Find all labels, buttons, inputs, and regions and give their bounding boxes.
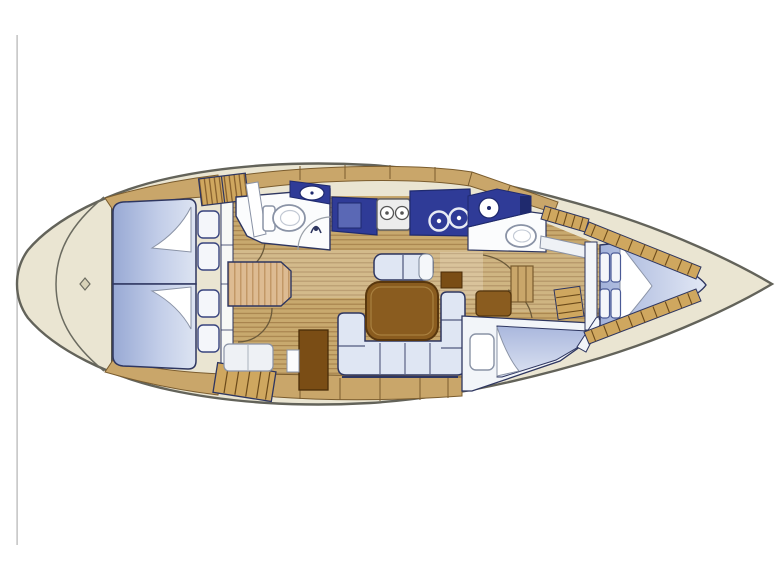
nav-white-panel — [287, 350, 299, 372]
fwd-berth-pillow — [470, 334, 494, 370]
fwd-head-counter-end — [520, 196, 531, 214]
floorplan-svg — [0, 0, 780, 585]
vberth-bulkhead — [585, 242, 597, 330]
salon-table — [366, 282, 438, 340]
galley-sink-left — [338, 203, 361, 228]
nav-seat-brown — [299, 330, 328, 390]
chart-table — [228, 262, 291, 306]
settee-top-bench — [374, 254, 433, 280]
mast-step-block — [554, 286, 584, 319]
stove — [377, 199, 410, 230]
wardrobe — [511, 266, 533, 302]
toilet-fwd — [506, 225, 536, 247]
fwd-cabin-step — [476, 291, 511, 316]
side-shelf-brown — [441, 272, 462, 288]
boat-floorplan-image — [0, 0, 780, 585]
toilet-aft — [263, 205, 305, 231]
